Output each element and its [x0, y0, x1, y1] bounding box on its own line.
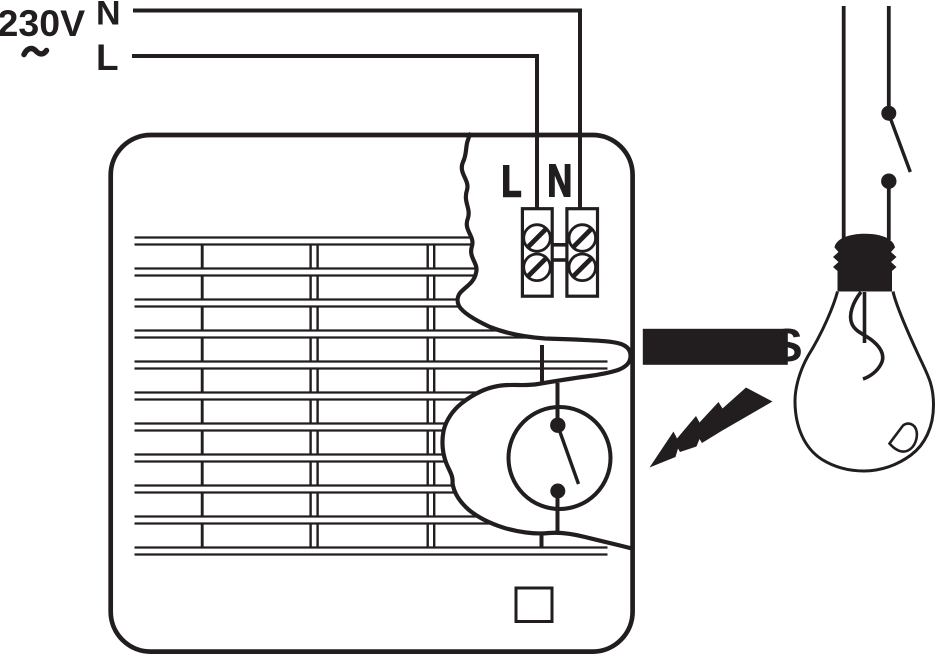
svg-text:230V: 230V	[0, 2, 85, 44]
svg-text:N: N	[96, 0, 121, 33]
svg-text:L: L	[96, 37, 119, 78]
svg-text:S: S	[772, 319, 803, 371]
